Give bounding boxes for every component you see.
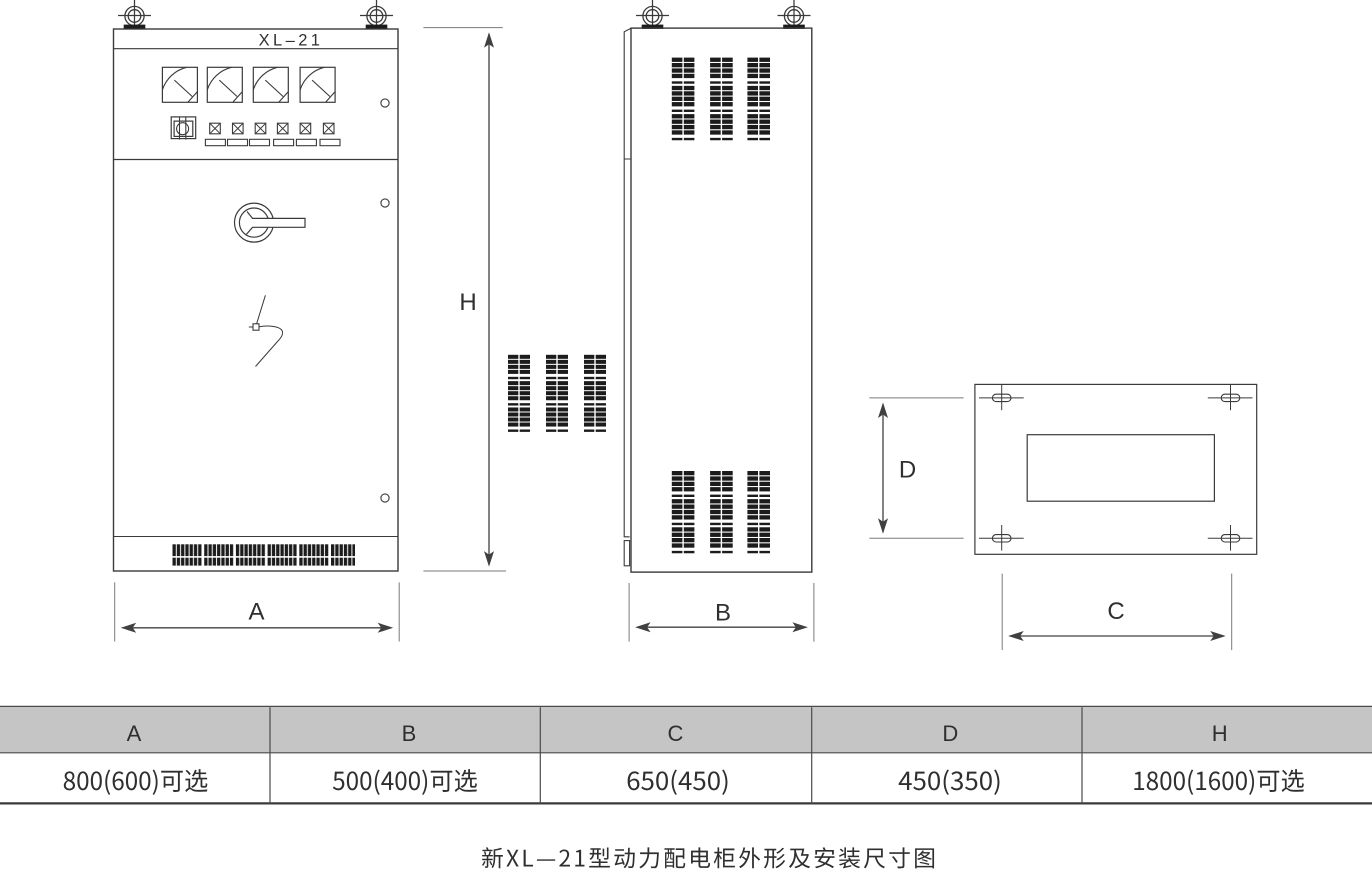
svg-text:H: H: [459, 289, 476, 316]
svg-text:C: C: [1107, 598, 1124, 625]
svg-text:A: A: [127, 721, 142, 746]
svg-text:B: B: [402, 721, 417, 746]
svg-text:D: D: [899, 456, 916, 483]
svg-text:H: H: [1212, 721, 1228, 746]
svg-text:XL–21: XL–21: [259, 32, 324, 50]
svg-text:B: B: [715, 599, 731, 626]
svg-text:C: C: [668, 721, 684, 746]
svg-text:D: D: [942, 721, 958, 746]
svg-text:A: A: [248, 599, 264, 626]
